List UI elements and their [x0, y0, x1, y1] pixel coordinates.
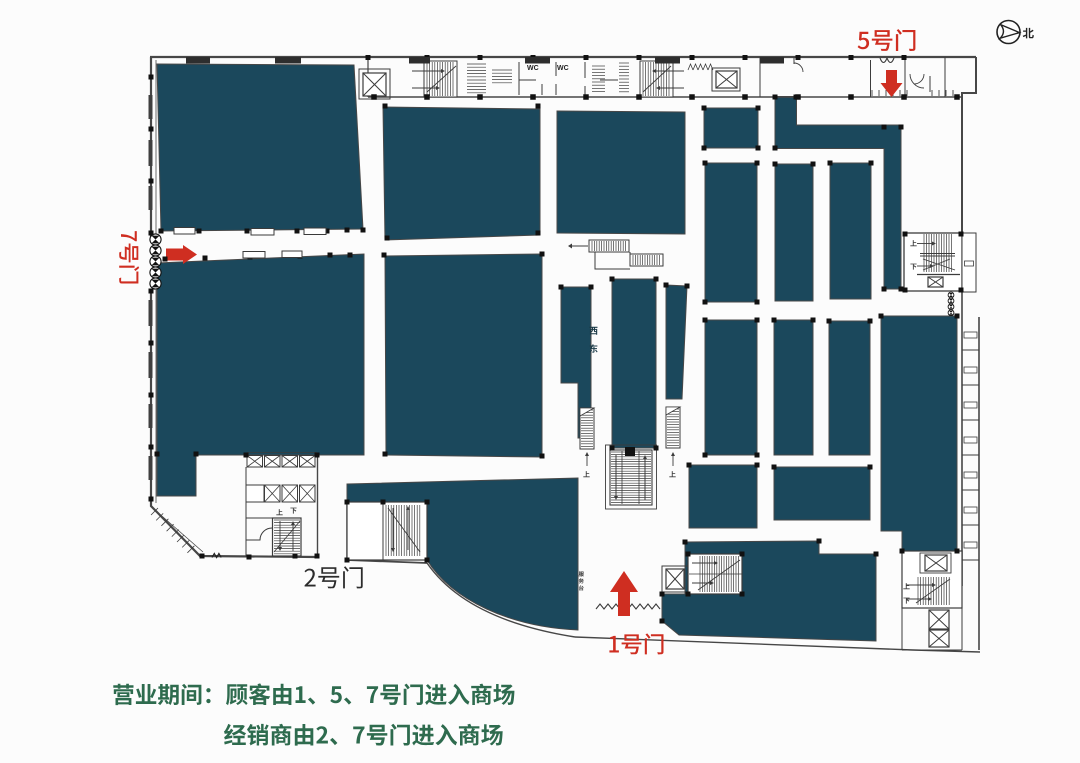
svg-text:WC: WC [527, 65, 539, 72]
svg-text:WC: WC [557, 65, 569, 72]
